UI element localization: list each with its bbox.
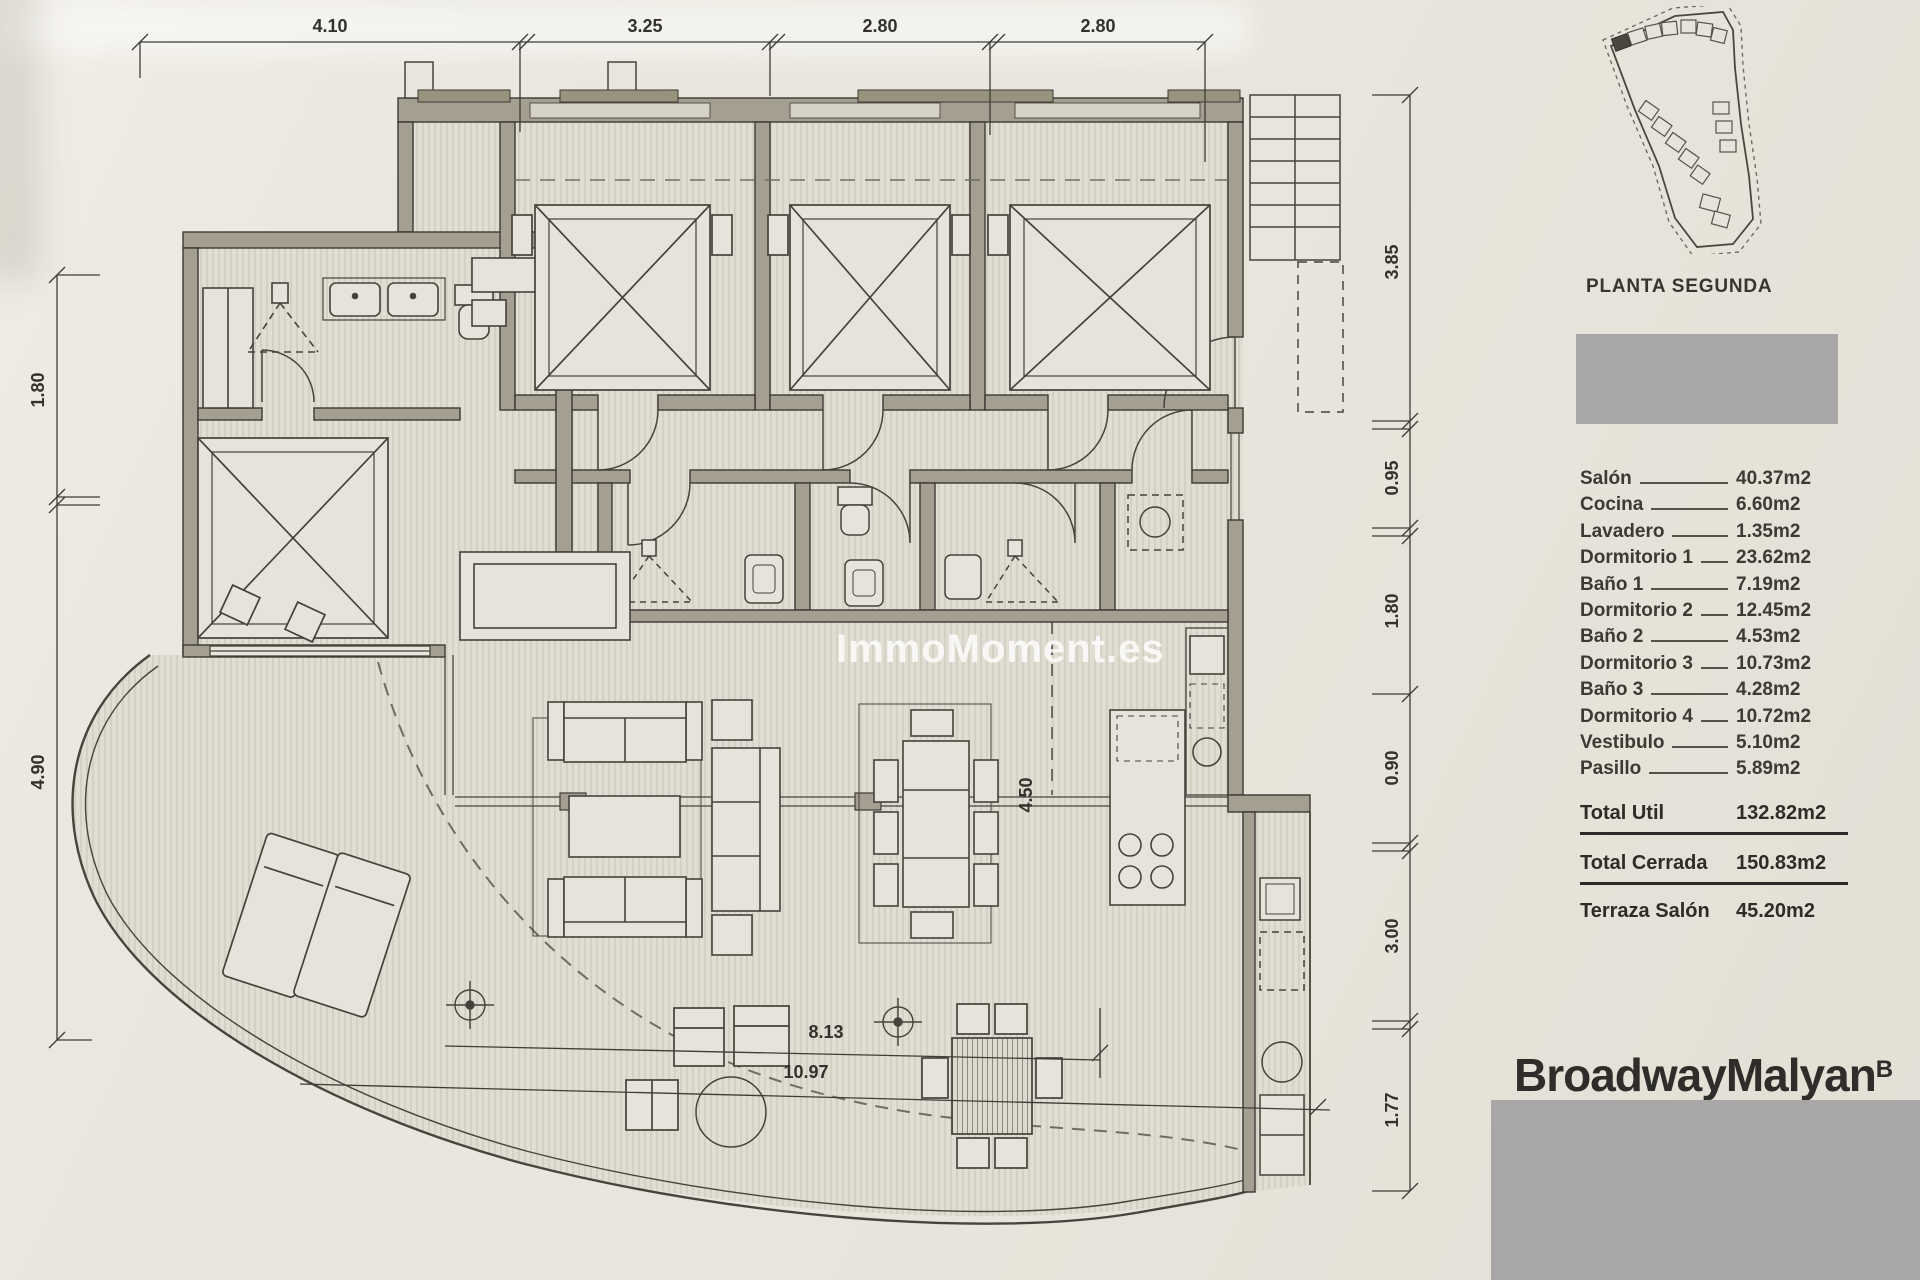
room-area: 12.45m2 (1736, 600, 1848, 622)
logo-mark: B (1876, 1056, 1893, 1083)
legend-row: Salón40.37m2 (1580, 468, 1848, 494)
room-name: Dormitorio 3 (1580, 653, 1693, 675)
dim-top-4: 2.80 (1080, 16, 1115, 36)
dim-right-5: 3.00 (1382, 918, 1402, 953)
master-closet (460, 552, 630, 640)
legend-row: Lavadero1.35m2 (1580, 521, 1848, 547)
bedroom-2-bed (768, 205, 970, 390)
room-area: 5.89m2 (1736, 758, 1848, 780)
floor-plan: 4.10 3.25 2.80 2.80 1.80 4.90 3.85 0.95 … (0, 0, 1470, 1280)
exterior-stairs (1250, 95, 1343, 412)
legend-row: Baño 34.28m2 (1580, 679, 1848, 705)
room-name: Baño 3 (1580, 679, 1643, 701)
legend-row: Dormitorio 410.72m2 (1580, 706, 1848, 732)
leader-line (1651, 693, 1728, 695)
room-name: Dormitorio 1 (1580, 547, 1693, 569)
leader-line (1649, 772, 1728, 774)
room-name: Vestibulo (1580, 732, 1664, 754)
watermark: ImmoMoment.es (836, 627, 1165, 671)
room-name: Salón (1580, 468, 1632, 490)
room-area: 40.37m2 (1736, 468, 1848, 490)
total-label: Total Util (1580, 802, 1736, 825)
master-bed (198, 438, 388, 642)
coffee-table (569, 796, 680, 857)
scanned-floorplan-page: { "plan": { "watermark": "ImmoMoment.es"… (0, 0, 1920, 1280)
dim-right-1: 3.85 (1382, 244, 1402, 279)
site-map (1575, 6, 1770, 254)
dim-top-2: 3.25 (627, 16, 662, 36)
total-label: Total Cerrada (1580, 852, 1736, 875)
bedroom-1-bed (512, 205, 732, 390)
redacted-block-top (1576, 334, 1838, 424)
room-area: 10.73m2 (1736, 653, 1848, 675)
terrace-row: Terraza Salón 45.20m2 (1580, 900, 1848, 930)
sofa-bottom (548, 877, 702, 937)
room-area: 4.28m2 (1736, 679, 1848, 701)
dim-left-2: 4.90 (28, 754, 48, 789)
leader-line (1701, 614, 1728, 616)
legend-row: Baño 17.19m2 (1580, 574, 1848, 600)
room-name: Lavadero (1580, 521, 1664, 543)
room-name: Dormitorio 4 (1580, 706, 1693, 728)
dim-right-2: 0.95 (1382, 460, 1402, 495)
room-name: Cocina (1580, 494, 1643, 516)
legend-row: Pasillo5.89m2 (1580, 758, 1848, 784)
kitchen-island (1110, 710, 1185, 905)
total-util-row: Total Util 132.82m2 (1580, 802, 1848, 835)
total-cerrada-row: Total Cerrada 150.83m2 (1580, 852, 1848, 885)
legend-row: Baño 24.53m2 (1580, 626, 1848, 652)
dim-top-1: 4.10 (312, 16, 347, 36)
leader-line (1701, 720, 1728, 722)
facade-windows (530, 103, 1200, 118)
dim-left-1: 1.80 (28, 372, 48, 407)
leader-line (1672, 746, 1728, 748)
legend-row: Dormitorio 123.62m2 (1580, 547, 1848, 573)
leader-line (1701, 561, 1728, 563)
room-area: 4.53m2 (1736, 626, 1848, 648)
dim-terrace-lower: 10.97 (783, 1062, 828, 1082)
leader-line (1640, 482, 1728, 484)
leader-line (1651, 588, 1728, 590)
leader-line (1651, 640, 1728, 642)
room-area: 23.62m2 (1736, 547, 1848, 569)
room-name: Dormitorio 2 (1580, 600, 1693, 622)
dim-top-3: 2.80 (862, 16, 897, 36)
total-area: 132.82m2 (1736, 802, 1848, 825)
dim-terrace-upper: 8.13 (808, 1022, 843, 1042)
bedroom-3-bed (988, 205, 1210, 390)
room-area: 6.60m2 (1736, 494, 1848, 516)
room-area: 7.19m2 (1736, 574, 1848, 596)
sofa-top (548, 702, 702, 762)
room-name: Baño 1 (1580, 574, 1643, 596)
dim-right-3: 1.80 (1382, 593, 1402, 628)
leader-line (1701, 667, 1728, 669)
legend-row: Dormitorio 310.73m2 (1580, 653, 1848, 679)
location-marker-icon (1611, 34, 1630, 52)
terrace-label: Terraza Salón (1580, 900, 1736, 923)
architect-logo: BroadwayMalyanB (1514, 1048, 1893, 1102)
room-area: 1.35m2 (1736, 521, 1848, 543)
room-name: Pasillo (1580, 758, 1641, 780)
total-area: 150.83m2 (1736, 852, 1848, 875)
leader-line (1651, 508, 1728, 510)
legend-row: Dormitorio 212.45m2 (1580, 600, 1848, 626)
redacted-block-bottom (1491, 1100, 1920, 1280)
terrace-area: 45.20m2 (1736, 900, 1848, 923)
dim-right-4: 0.90 (1382, 750, 1402, 785)
leader-line (1672, 535, 1728, 537)
page-title: PLANTA SEGUNDA (1586, 276, 1772, 298)
area-legend: Salón40.37m2 Cocina6.60m2 Lavadero1.35m2… (1580, 468, 1848, 930)
legend-row: Vestibulo5.10m2 (1580, 732, 1848, 758)
room-area: 10.72m2 (1736, 706, 1848, 728)
room-area: 5.10m2 (1736, 732, 1848, 754)
dim-right-6: 1.77 (1382, 1092, 1402, 1127)
legend-row: Cocina6.60m2 (1580, 494, 1848, 520)
room-name: Baño 2 (1580, 626, 1643, 648)
dim-inner-vertical: 4.50 (1016, 777, 1036, 812)
